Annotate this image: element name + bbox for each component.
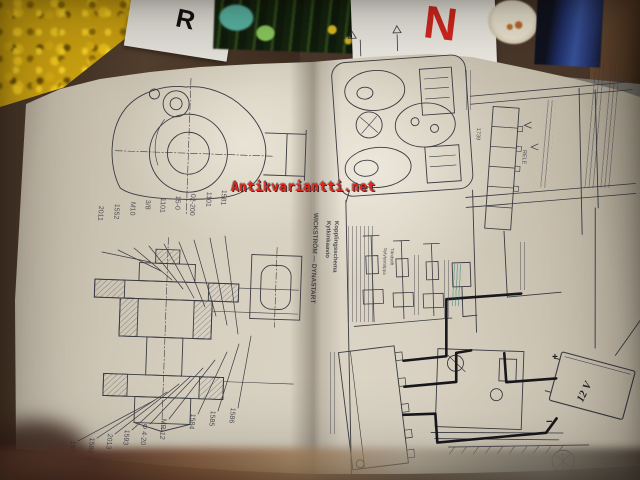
part-label: 1581 bbox=[219, 190, 227, 206]
part-label: 02-200 bbox=[188, 194, 196, 216]
illegible-text-block bbox=[414, 255, 420, 315]
relay-number-label: 1739 bbox=[475, 128, 481, 140]
watermark-text: Antikvariantti.net bbox=[231, 180, 375, 195]
part-label: 1101 bbox=[158, 198, 166, 213]
relay-word-label: RELE bbox=[521, 150, 527, 165]
illegible-text-block bbox=[466, 70, 471, 110]
spark-plug-label-fi: Sytytystulppa bbox=[382, 248, 388, 275]
part-label: 15-0 bbox=[173, 196, 181, 210]
part-label: 1552 bbox=[112, 204, 120, 220]
illegible-text-block bbox=[520, 242, 526, 290]
battery-plus-sign: + bbox=[552, 352, 558, 363]
technical-drawings bbox=[0, 0, 640, 480]
part-label: 2011 bbox=[96, 206, 104, 221]
part-label: 3/8 bbox=[144, 200, 151, 210]
foreground-blur bbox=[0, 448, 640, 480]
battery-minus-sign: − bbox=[546, 416, 552, 428]
illegible-text-block bbox=[348, 226, 374, 322]
open-book: 2011 1552 M10 3/8 1101 15-0 02-200 1101 … bbox=[0, 0, 640, 480]
photo-open-manual: R N bbox=[0, 0, 640, 480]
part-label: M10 bbox=[128, 202, 136, 216]
part-label: 1101 bbox=[204, 192, 212, 207]
illegible-text-block bbox=[444, 260, 450, 318]
spark-plug-label-sv: Tändstift bbox=[389, 248, 395, 265]
illegible-text-block bbox=[330, 352, 337, 434]
